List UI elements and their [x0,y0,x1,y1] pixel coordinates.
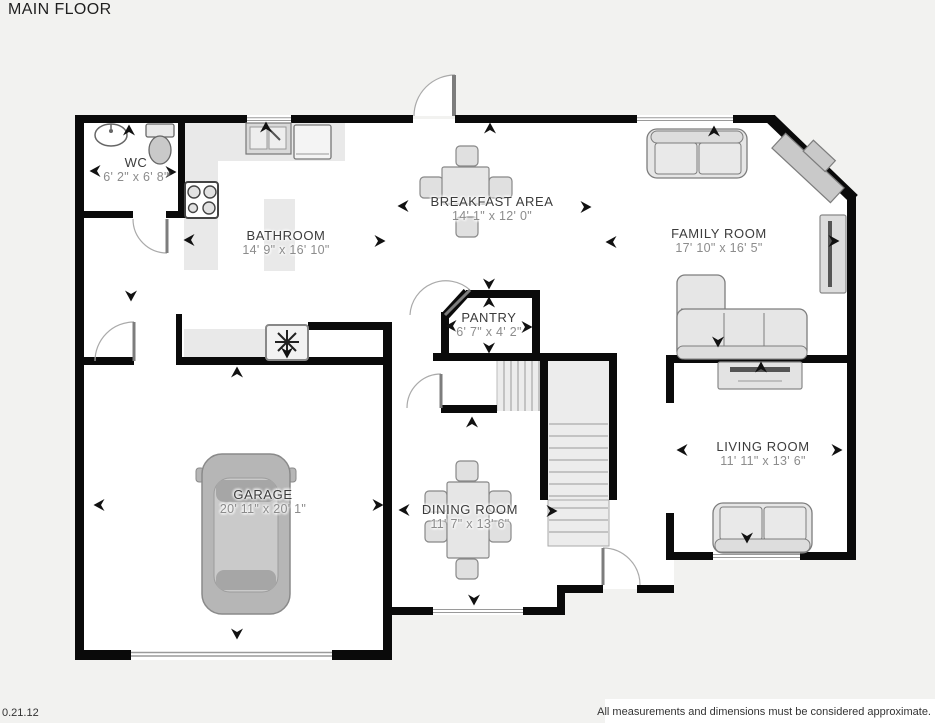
room-dims: 6' 7" x 4' 2" [456,325,522,339]
page-title: MAIN FLOOR [8,1,112,19]
room-name: LIVING ROOM [716,440,809,454]
room-name: FAMILY ROOM [671,227,767,241]
room-label-wc: WC 6' 2" x 6' 8" [103,156,169,184]
footer-version: 0.21.12 [2,707,39,719]
room-dims: 20' 11" x 20' 1" [220,502,306,516]
wc-sink [95,124,127,146]
stove [185,182,218,218]
room-dims: 17' 10" x 16' 5" [671,241,767,255]
dishwasher [294,125,331,159]
footer-disclaimer: All measurements and dimensions must be … [597,706,931,718]
room-name: PANTRY [456,311,522,325]
room-dims: 14' 9" x 16' 10" [242,243,329,257]
room-label-family: FAMILY ROOM 17' 10" x 16' 5" [671,227,767,255]
living-sofa [713,503,812,553]
room-name: WC [103,156,169,170]
room-dims: 11' 7" x 13' 6" [422,517,518,531]
car [196,454,296,614]
room-name: GARAGE [220,488,306,502]
room-label-pantry: PANTRY 6' 7" x 4' 2" [456,311,522,339]
room-name: BREAKFAST AREA [430,195,553,209]
floor-plan-drawing [0,0,935,723]
floorplan-page: MAIN FLOOR WC 6' 2" x 6' 8" BATHROOM 14'… [0,0,935,723]
media-unit [820,215,846,293]
room-label-bathroom: BATHROOM 14' 9" x 16' 10" [242,229,329,257]
room-dims: 14' 1" x 12' 0" [430,209,553,223]
front-door [414,75,455,116]
room-label-living: LIVING ROOM 11' 11" x 13' 6" [716,440,809,468]
room-label-breakfast: BREAKFAST AREA 14' 1" x 12' 0" [430,195,553,223]
room-dims: 11' 11" x 13' 6" [716,454,809,468]
room-name: DINING ROOM [422,503,518,517]
room-name: BATHROOM [242,229,329,243]
room-label-dining: DINING ROOM 11' 7" x 13' 6" [422,503,518,531]
room-label-garage: GARAGE 20' 11" x 20' 1" [220,488,306,516]
family-loveseat [647,129,747,178]
room-dims: 6' 2" x 6' 8" [103,170,169,184]
